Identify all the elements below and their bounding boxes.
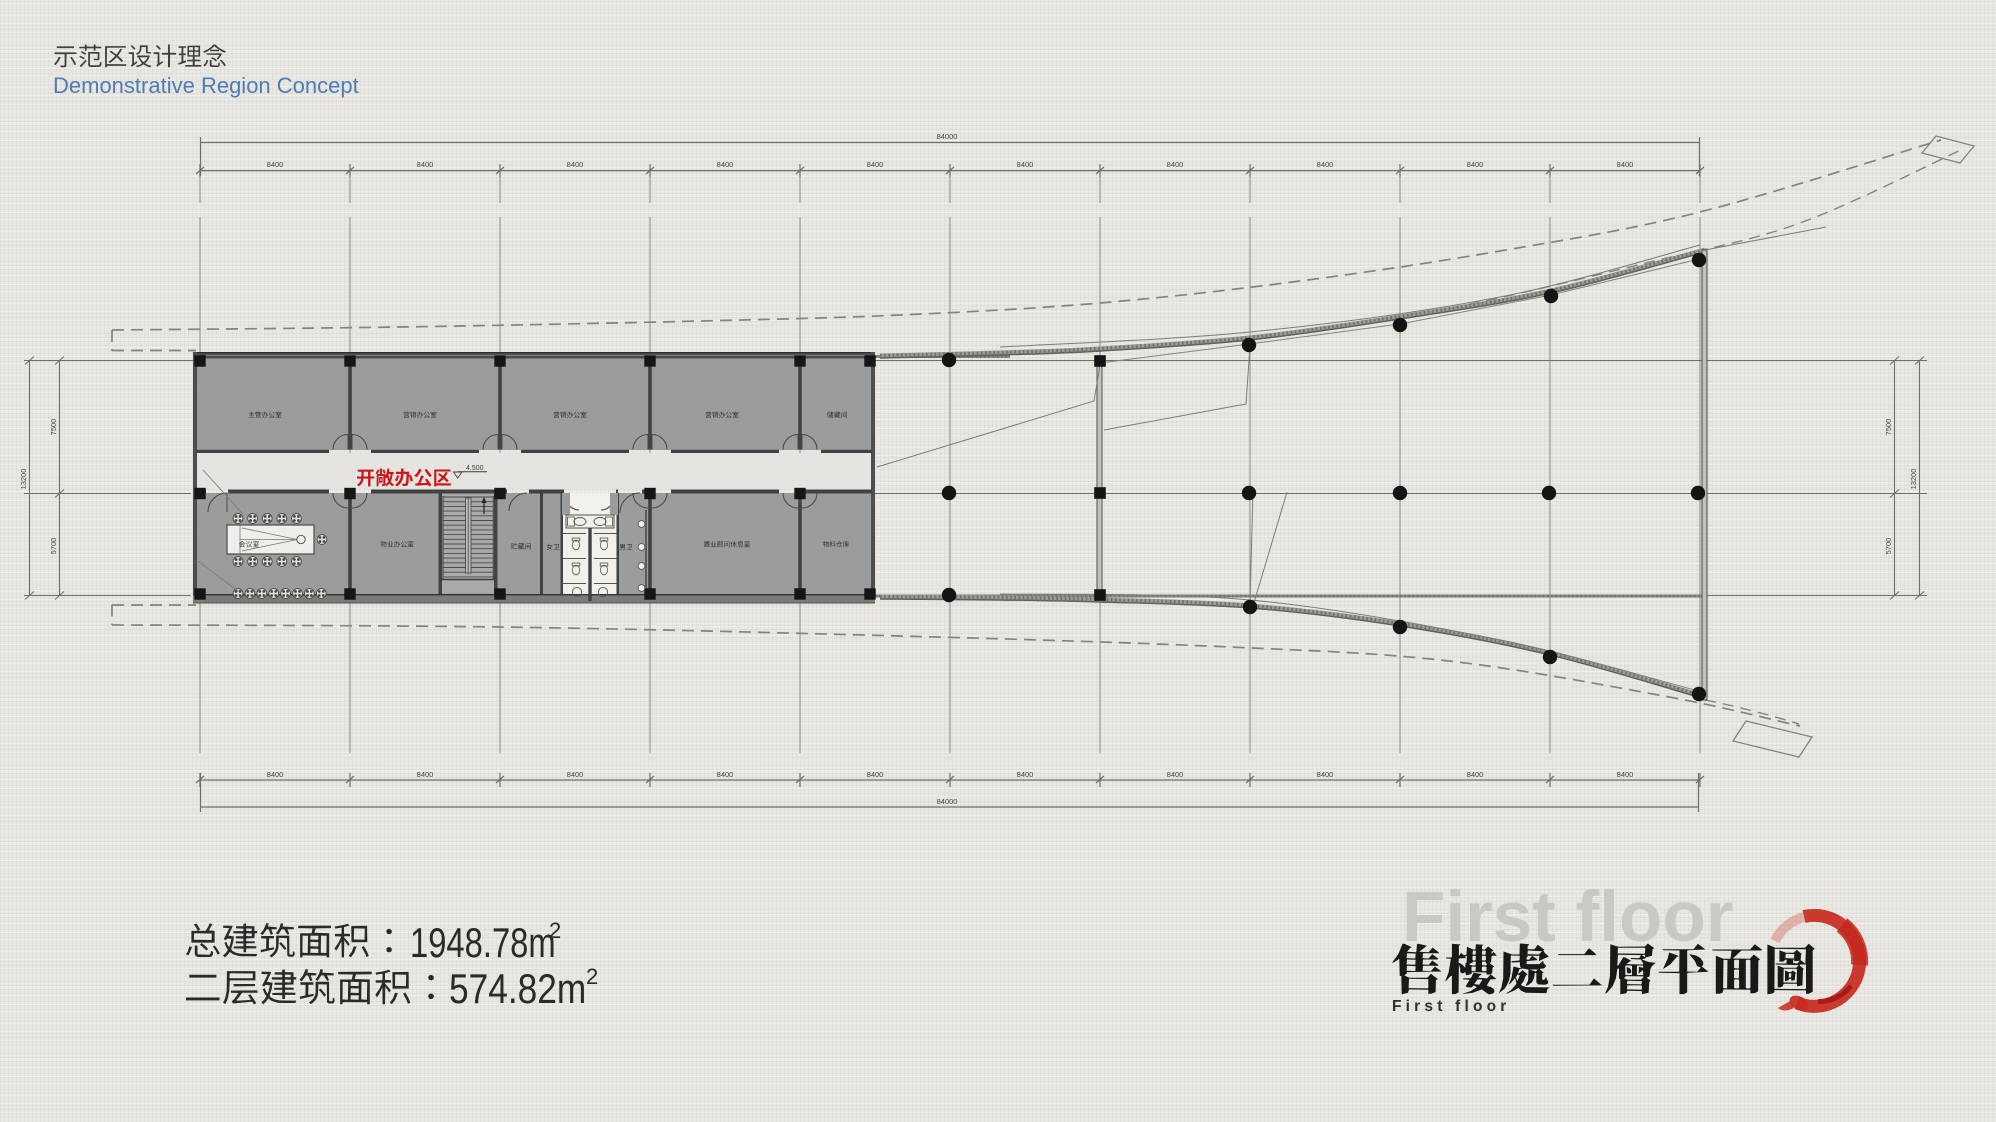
svg-text:8400: 8400 bbox=[1167, 770, 1184, 779]
svg-text:8400: 8400 bbox=[1467, 160, 1484, 169]
svg-text:8400: 8400 bbox=[867, 770, 884, 779]
svg-text:8400: 8400 bbox=[1617, 770, 1634, 779]
svg-text:Demonstrative Region Concept: Demonstrative Region Concept bbox=[53, 73, 359, 98]
svg-text:7500: 7500 bbox=[1884, 419, 1893, 436]
svg-text:8400: 8400 bbox=[1317, 770, 1334, 779]
svg-text:8400: 8400 bbox=[417, 160, 434, 169]
svg-text:2: 2 bbox=[586, 964, 598, 989]
svg-text:8400: 8400 bbox=[267, 770, 284, 779]
svg-text:574.82m: 574.82m bbox=[449, 966, 586, 1013]
svg-text:8400: 8400 bbox=[567, 160, 584, 169]
svg-text:8400: 8400 bbox=[717, 770, 734, 779]
svg-text:7500: 7500 bbox=[49, 419, 58, 436]
svg-text:8400: 8400 bbox=[267, 160, 284, 169]
svg-text:13200: 13200 bbox=[19, 469, 28, 490]
svg-text:84000: 84000 bbox=[937, 132, 958, 141]
svg-text:First floor: First floor bbox=[1392, 998, 1511, 1015]
svg-text:First floor: First floor bbox=[1402, 878, 1733, 957]
svg-text:8400: 8400 bbox=[567, 770, 584, 779]
svg-text:1948.78m: 1948.78m bbox=[410, 919, 556, 966]
svg-text:4.500: 4.500 bbox=[466, 465, 484, 472]
svg-text:8400: 8400 bbox=[1467, 770, 1484, 779]
svg-text:13200: 13200 bbox=[1909, 469, 1918, 490]
svg-text:8400: 8400 bbox=[1317, 160, 1334, 169]
svg-text:84000: 84000 bbox=[937, 797, 958, 806]
svg-text:8400: 8400 bbox=[717, 160, 734, 169]
svg-text:8400: 8400 bbox=[867, 160, 884, 169]
svg-text:5700: 5700 bbox=[1884, 538, 1893, 555]
svg-text:2: 2 bbox=[549, 918, 561, 943]
svg-text:5700: 5700 bbox=[49, 538, 58, 555]
svg-text:8400: 8400 bbox=[1017, 770, 1034, 779]
svg-text:8400: 8400 bbox=[1017, 160, 1034, 169]
svg-text:8400: 8400 bbox=[1617, 160, 1634, 169]
svg-text:8400: 8400 bbox=[1167, 160, 1184, 169]
svg-text:8400: 8400 bbox=[417, 770, 434, 779]
